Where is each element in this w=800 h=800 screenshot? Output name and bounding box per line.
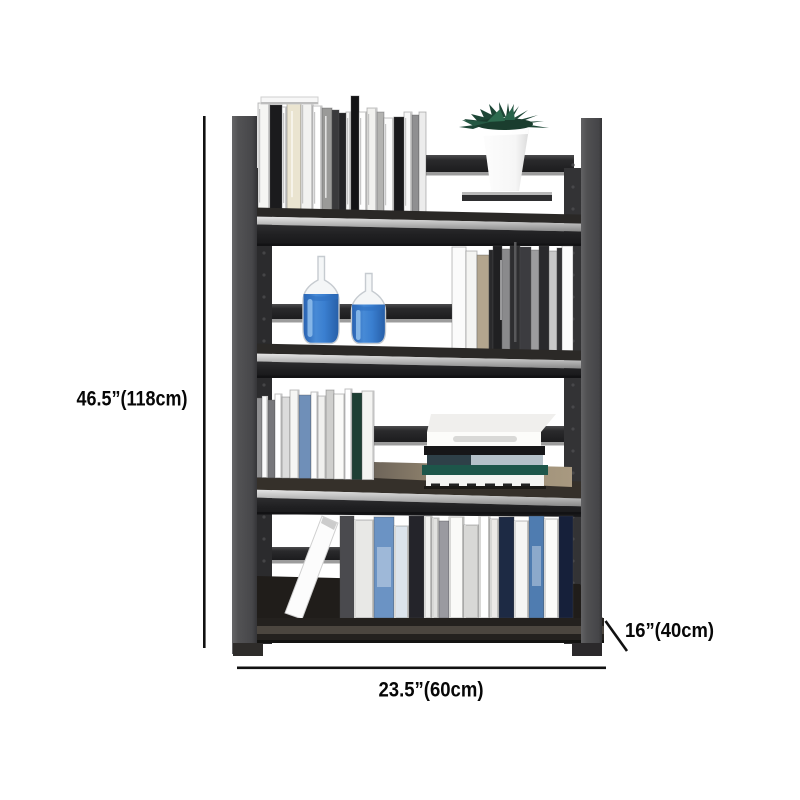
svg-text:23.5”(60cm): 23.5”(60cm) <box>379 679 484 702</box>
svg-text:46.5”(118cm): 46.5”(118cm) <box>77 388 188 411</box>
svg-text:16”(40cm): 16”(40cm) <box>625 620 714 642</box>
